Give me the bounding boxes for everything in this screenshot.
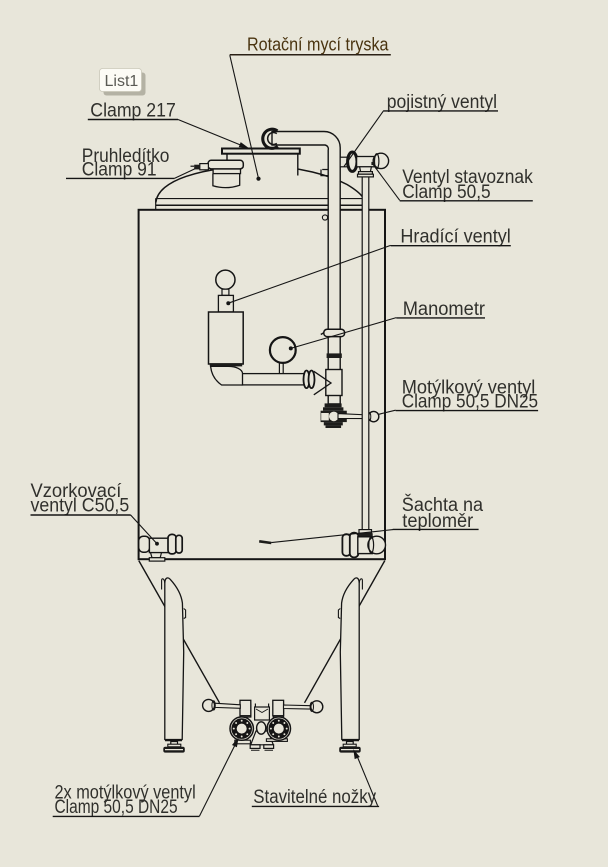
svg-text:Rotační mycí tryska: Rotační mycí tryska — [247, 34, 389, 54]
svg-text:Stavitelné nožky: Stavitelné nožky — [253, 787, 376, 808]
svg-text:Clamp 50,5 DN25: Clamp 50,5 DN25 — [402, 392, 538, 413]
svg-text:Clamp 50,5 DN25: Clamp 50,5 DN25 — [55, 797, 178, 818]
svg-text:Clamp 91: Clamp 91 — [82, 160, 157, 181]
svg-text:ventyl C50,5: ventyl C50,5 — [31, 495, 130, 516]
svg-text:List1: List1 — [105, 73, 139, 90]
svg-text:Manometr: Manometr — [403, 299, 486, 320]
svg-text:Hradící ventyl: Hradící ventyl — [400, 227, 510, 248]
svg-text:Clamp 217: Clamp 217 — [90, 100, 176, 121]
svg-text:Clamp 50,5: Clamp 50,5 — [402, 182, 491, 203]
svg-text:pojistný ventyl: pojistný ventyl — [387, 92, 497, 113]
